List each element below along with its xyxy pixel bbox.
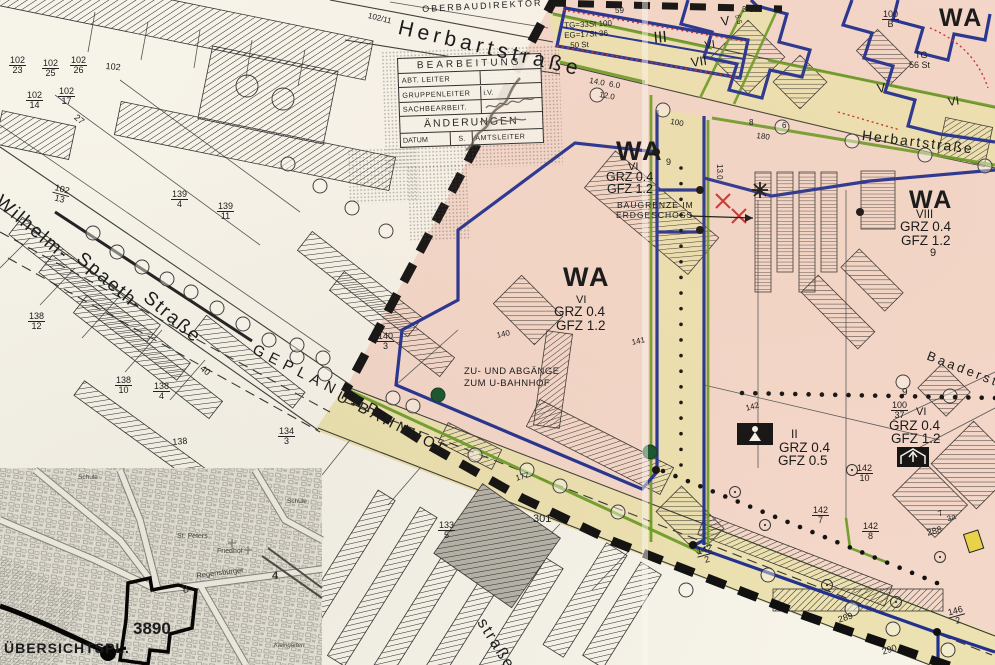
signature-sachbearbeiter [480, 119, 526, 122]
paper-crease [642, 0, 648, 665]
signature-gruppenleiter [486, 98, 534, 108]
bebauungsplan-scan: BEARBEITUNG ABT. LEITER GRUPPENLEITERi.V… [0, 0, 995, 665]
signature-smudge [466, 78, 520, 150]
signatures-overlay [0, 0, 995, 665]
